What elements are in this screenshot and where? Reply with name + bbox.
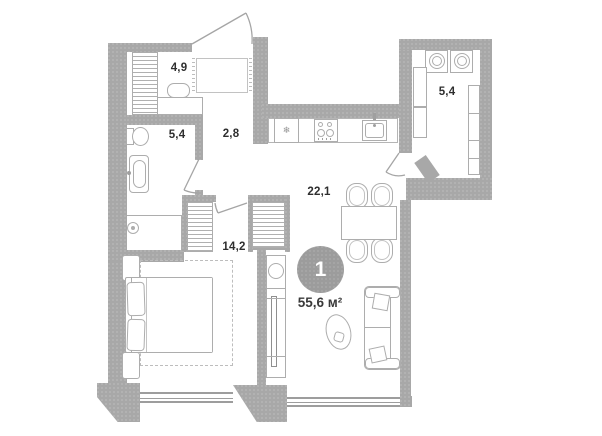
bed-pillow-top <box>126 282 145 317</box>
stove-burner-large-right <box>326 129 334 137</box>
area-label-dressing: 4,9 <box>171 62 188 74</box>
wall-bathroom-top <box>127 115 203 125</box>
dresser-dressing <box>157 97 203 115</box>
dining-chair-bottom-right <box>371 237 393 263</box>
stove-burner-large-left <box>317 129 325 137</box>
sofa-back-line <box>390 297 391 359</box>
wardrobe-dressing <box>132 52 158 115</box>
entrance-door-leaf <box>192 13 246 44</box>
kitchen-faucet <box>373 113 376 120</box>
bedroom-door-leaf <box>218 203 247 213</box>
laundry-cabinet-upper <box>413 67 427 107</box>
wall-closet-top-right <box>248 195 290 202</box>
bedroom-window <box>140 392 233 403</box>
nightstand-bottom <box>122 352 140 379</box>
stove-knobs <box>318 138 334 140</box>
wall-bathroom-right-upper <box>195 115 203 160</box>
fridge: ❄ <box>274 118 299 143</box>
area-label-hallway: 2,8 <box>223 128 240 140</box>
console-divider <box>266 288 286 289</box>
laundry-shelf-divider-3 <box>468 158 480 159</box>
laundry-shelves <box>468 85 480 175</box>
wall-corner-bottom-left <box>97 383 140 422</box>
bathroom-sink-basin <box>133 160 146 188</box>
laundry-shelf-divider-2 <box>468 140 480 141</box>
sofa-seat-divider <box>365 327 391 328</box>
wall-laundry-left <box>399 49 412 153</box>
wall-laundry-right <box>480 39 492 200</box>
laundry-door-leaf <box>386 153 399 172</box>
stove-burner-small-left <box>318 122 323 127</box>
entrance-door-arc <box>246 13 252 44</box>
bathroom-door-leaf <box>184 159 199 190</box>
wall-bedroom-living <box>257 250 266 385</box>
wall-laundry-bottom <box>406 178 492 200</box>
wall-top-left <box>108 43 192 52</box>
tv-bracket-bottom <box>266 356 286 357</box>
dining-table <box>341 206 397 240</box>
entrance-doormat <box>196 58 248 93</box>
washer-right-drum-inner <box>457 56 467 66</box>
total-area-label: 55,6 м² <box>270 295 370 310</box>
area-label-living: 22,1 <box>307 186 330 198</box>
doormat-fringe-left <box>192 58 195 93</box>
wall-laundry-top <box>399 39 492 50</box>
laundry-shelf-divider-1 <box>468 113 480 114</box>
closet-right <box>252 202 285 248</box>
shower-drain-dot <box>131 226 135 230</box>
bed-blanket <box>146 278 212 352</box>
shower-partition-horizontal <box>127 215 182 216</box>
bedroom-door-arc <box>215 203 218 213</box>
area-label-bathroom: 5,4 <box>169 129 186 141</box>
floor-plan: ❄ 4,9 5,4 <box>0 0 602 436</box>
stove-burner-small-right <box>327 122 332 127</box>
closet-left <box>187 202 213 252</box>
washer-left-drum-inner <box>432 56 442 66</box>
stool-dressing <box>167 83 190 98</box>
laundry-door-arc <box>386 172 405 176</box>
wall-window-cap-right <box>400 396 412 407</box>
living-window <box>287 397 400 407</box>
sofa-pillow-top <box>372 293 391 312</box>
shower-partition-vertical <box>181 215 182 251</box>
wall-entry-right <box>253 37 268 144</box>
area-label-laundry: 5,4 <box>439 86 456 98</box>
fridge-snowflake-icon: ❄ <box>275 119 298 142</box>
kitchen-faucet-dot <box>373 124 376 127</box>
laundry-cabinet-lower <box>413 107 427 138</box>
doormat-fringe-right <box>249 58 252 93</box>
toilet-bowl <box>132 127 149 146</box>
wall-living-right <box>400 200 411 396</box>
wall-kitchen-top <box>262 104 410 118</box>
unit-number-badge: 1 <box>297 246 344 293</box>
door-swings-layer <box>0 0 602 436</box>
laundry-diagonal-wall <box>420 159 434 179</box>
bathroom-sink-faucet <box>127 171 131 175</box>
wall-closet-top-left <box>182 195 216 202</box>
dining-chair-bottom-left <box>346 237 368 263</box>
wall-pier-bottom <box>233 385 287 422</box>
bed-pillow-bottom <box>126 319 145 352</box>
console-bowl <box>268 263 284 279</box>
area-label-bedroom: 14,2 <box>222 241 245 253</box>
